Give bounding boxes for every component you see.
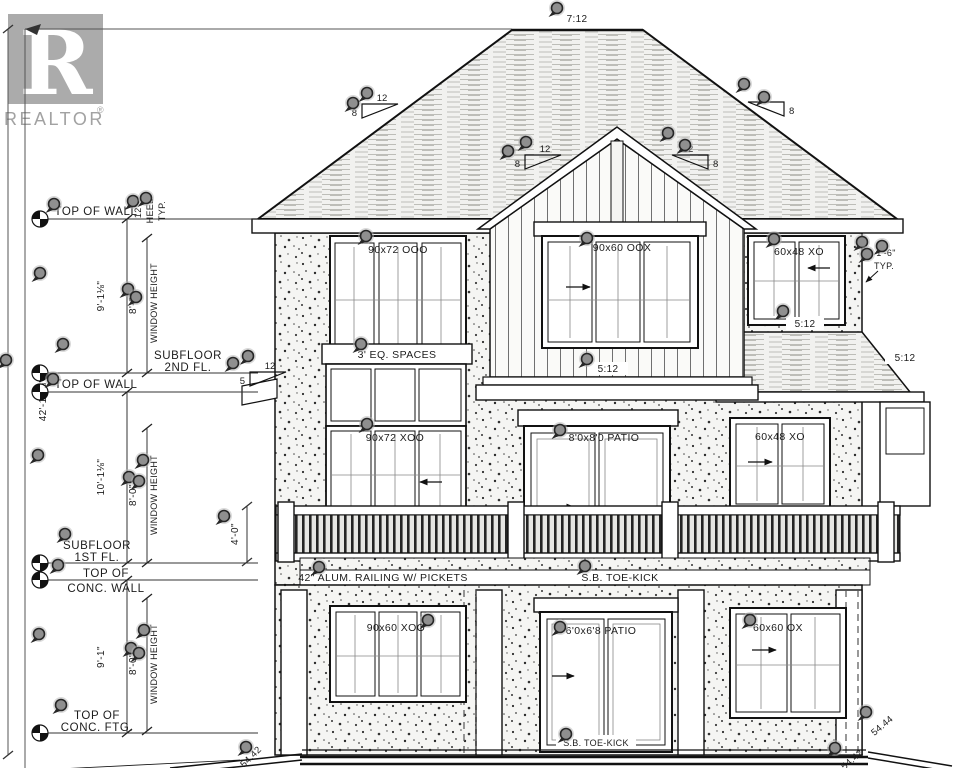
railing-post bbox=[508, 502, 524, 562]
annotation-pin-icon bbox=[359, 85, 376, 102]
railing-pickets bbox=[276, 515, 900, 553]
window-label: 60x60 OX bbox=[753, 622, 803, 634]
story-dim: 9'-1" bbox=[96, 646, 107, 668]
story-height-dims: 9'-1⅛" 10'-1⅛" 9'-1" 8'-0" WINDOW HEIGHT… bbox=[96, 199, 167, 704]
realtor-logo-letter: R bbox=[19, 11, 93, 115]
window-gable: 90x60 OOX bbox=[534, 222, 706, 348]
overhang-leader bbox=[866, 271, 878, 282]
toe-kick-label: S.B. TOE-KICK bbox=[581, 572, 658, 584]
railing-height-dim: 4'-0" bbox=[230, 523, 241, 545]
annotation-pin-icon bbox=[216, 508, 233, 525]
pitch-run: 12 bbox=[377, 93, 388, 104]
railing-post bbox=[278, 502, 294, 562]
pitch-label-far-right: 5:12 bbox=[895, 353, 916, 364]
toe-kick-bottom-label: S.B. TOE-KICK bbox=[563, 738, 629, 748]
eyebrow-band-upper bbox=[483, 377, 752, 385]
pitch-rise: 5 bbox=[240, 376, 245, 387]
elevation-drawing: R REALTOR ® 42'-10⅞" 90x60 OOX 90x72 OOO… bbox=[0, 0, 954, 768]
annotation-pin-icon bbox=[31, 626, 48, 643]
story-dim: 10'-1⅛" bbox=[96, 459, 107, 496]
annotation-pin-icon bbox=[30, 447, 47, 464]
railing-spec-label: 42" ALUM. RAILING W/ PICKETS bbox=[298, 572, 468, 584]
pitch-label-gable-base: 5:12 bbox=[598, 364, 619, 375]
railing-post bbox=[662, 502, 678, 562]
annotation-pin-icon bbox=[240, 348, 257, 365]
elev-label: 2ND FL. bbox=[164, 362, 211, 374]
window-label: 90x72 XOO bbox=[366, 432, 424, 444]
annotation-pin-icon bbox=[736, 76, 753, 93]
heel-label: TYP. bbox=[157, 201, 167, 221]
window-label: 90x60 XOO bbox=[367, 622, 425, 634]
gable-king-post bbox=[611, 141, 623, 229]
annotation-pin-icon bbox=[0, 352, 14, 369]
elevation-sheet: R REALTOR ® 42'-10⅞" 90x60 OOX 90x72 OOO… bbox=[0, 0, 954, 768]
registered-trademark-icon: ® bbox=[97, 105, 104, 115]
window-height-label: WINDOW HEIGHT bbox=[149, 624, 159, 704]
pitch-label-right-wall: 5:12 bbox=[795, 319, 816, 330]
elev-label: CONC. WALL bbox=[67, 583, 144, 595]
railing-post bbox=[878, 502, 894, 562]
elev-label: TOP OF bbox=[74, 710, 120, 722]
pitch-rise: 8 bbox=[713, 159, 718, 170]
datum-targets bbox=[32, 211, 48, 741]
elev-label: TOP OF WALL bbox=[54, 206, 137, 218]
elev-label: 1ST FL. bbox=[75, 552, 120, 564]
realtor-logo-name: REALTOR bbox=[4, 109, 105, 129]
window-label: 90x72 OOO bbox=[368, 244, 428, 256]
window-height-label: WINDOW HEIGHT bbox=[149, 263, 159, 343]
elev-label: SUBFLOOR bbox=[63, 540, 131, 552]
eyebrow-band-lower bbox=[476, 385, 758, 400]
elev-label: TOP OF WALL bbox=[54, 379, 137, 391]
annotation-pin-icon bbox=[549, 0, 566, 17]
pitch-rise: 8 bbox=[515, 159, 520, 170]
annotation-pin-icon bbox=[55, 336, 72, 353]
elev-label: SUBFLOOR bbox=[154, 350, 222, 362]
window-height-label: WINDOW HEIGHT bbox=[149, 455, 159, 535]
story-dim: 9'-1⅛" bbox=[96, 281, 107, 312]
pitch-rise: 8 bbox=[789, 106, 794, 117]
elev-label: CONC. FTG. bbox=[61, 722, 133, 734]
annotation-pin-icon bbox=[32, 265, 49, 282]
patio-door-label: 8'0x8'0 PATIO bbox=[569, 432, 640, 444]
annotation-pin-icon bbox=[53, 697, 70, 714]
grade-elevation: 54.44 bbox=[869, 714, 895, 739]
elev-label: TOP OF bbox=[83, 568, 129, 580]
window-upper-left: 90x72 OOO bbox=[330, 236, 466, 354]
overhang-typ: TYP. bbox=[874, 261, 894, 271]
window-main-right: 60x48 XO bbox=[730, 418, 830, 510]
main-roof-pitch-label: 7:12 bbox=[567, 14, 588, 25]
annotation-pin-icon bbox=[50, 557, 67, 574]
patio-door-label: 6'0x6'8 PATIO bbox=[566, 625, 637, 637]
pitch-run: 12 bbox=[540, 144, 551, 155]
railing-top-rail bbox=[276, 506, 900, 515]
annotation-pin-icon bbox=[225, 355, 242, 372]
transom-header-label: 3' EQ. SPACES bbox=[358, 349, 437, 361]
window-upper-right: 60x48 XO bbox=[748, 236, 845, 325]
window-label: 90x60 OOX bbox=[593, 242, 651, 254]
right-bumpout-window bbox=[886, 408, 924, 454]
window-label: 60x48 XO bbox=[755, 431, 805, 443]
window-main-left-assembly: 3' EQ. SPACES 90x72 XOO bbox=[322, 344, 472, 516]
window-label: 60x48 XO bbox=[774, 246, 824, 258]
window-basement-left: 90x60 XOO bbox=[330, 606, 466, 702]
annotation-pin-icon bbox=[345, 95, 362, 112]
pitch-run: 12 bbox=[265, 361, 276, 372]
